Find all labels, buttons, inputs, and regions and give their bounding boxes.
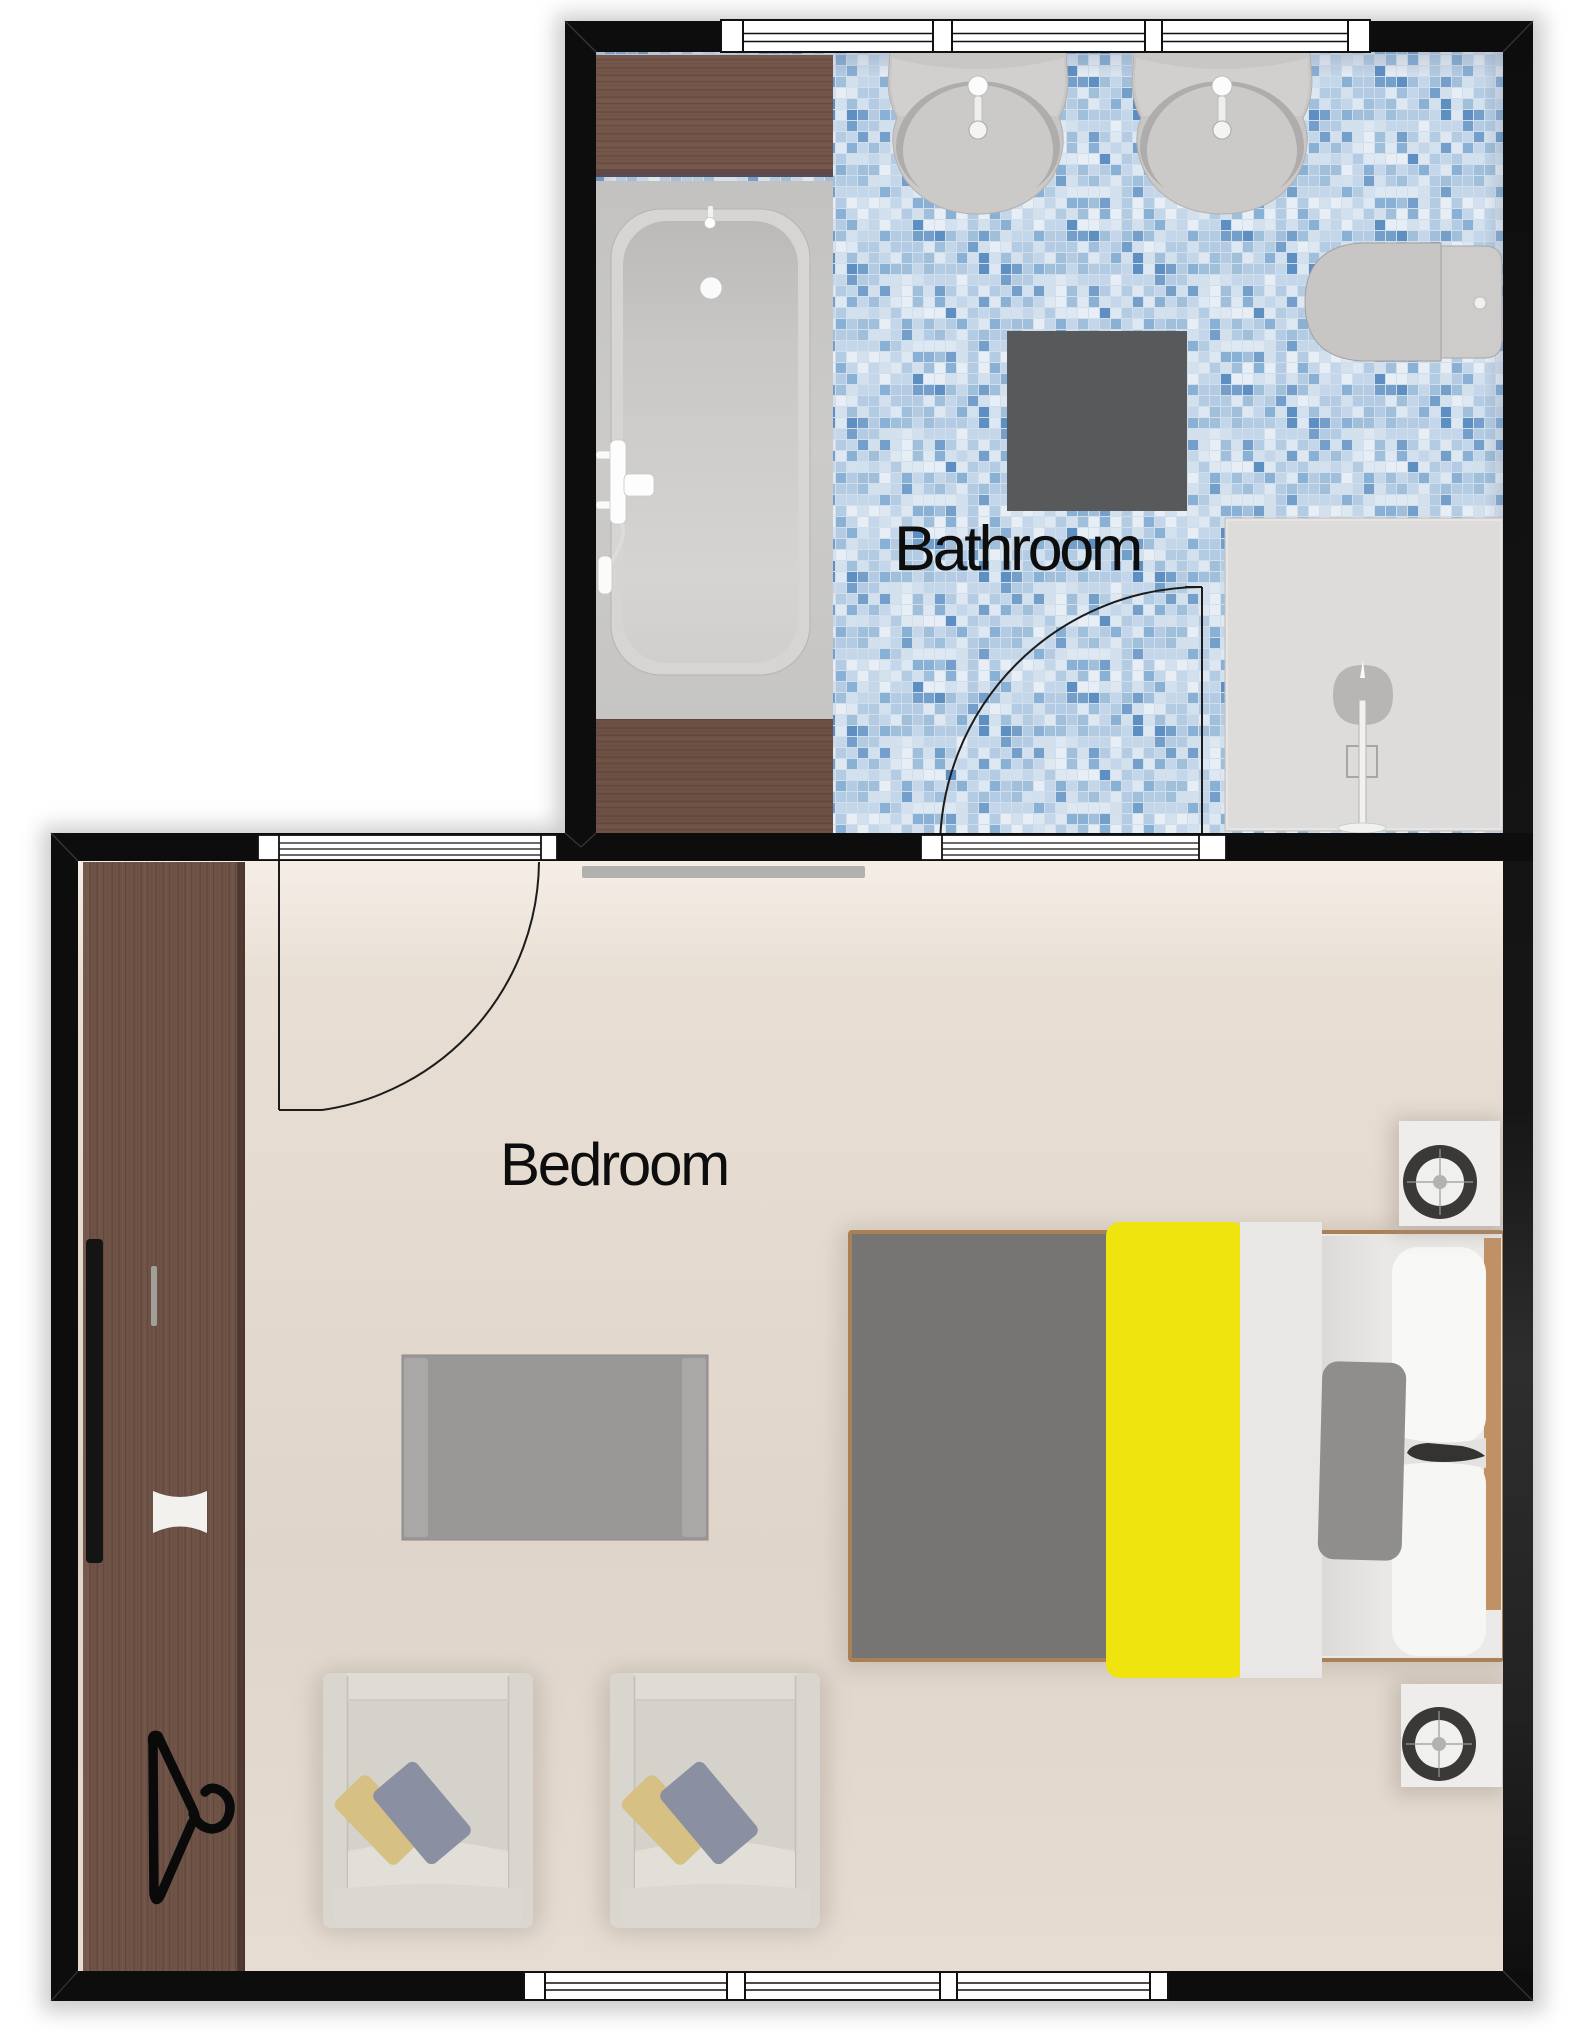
svg-text:Bedroom: Bedroom (500, 1131, 728, 1198)
svg-text:Bathroom: Bathroom (894, 514, 1140, 584)
